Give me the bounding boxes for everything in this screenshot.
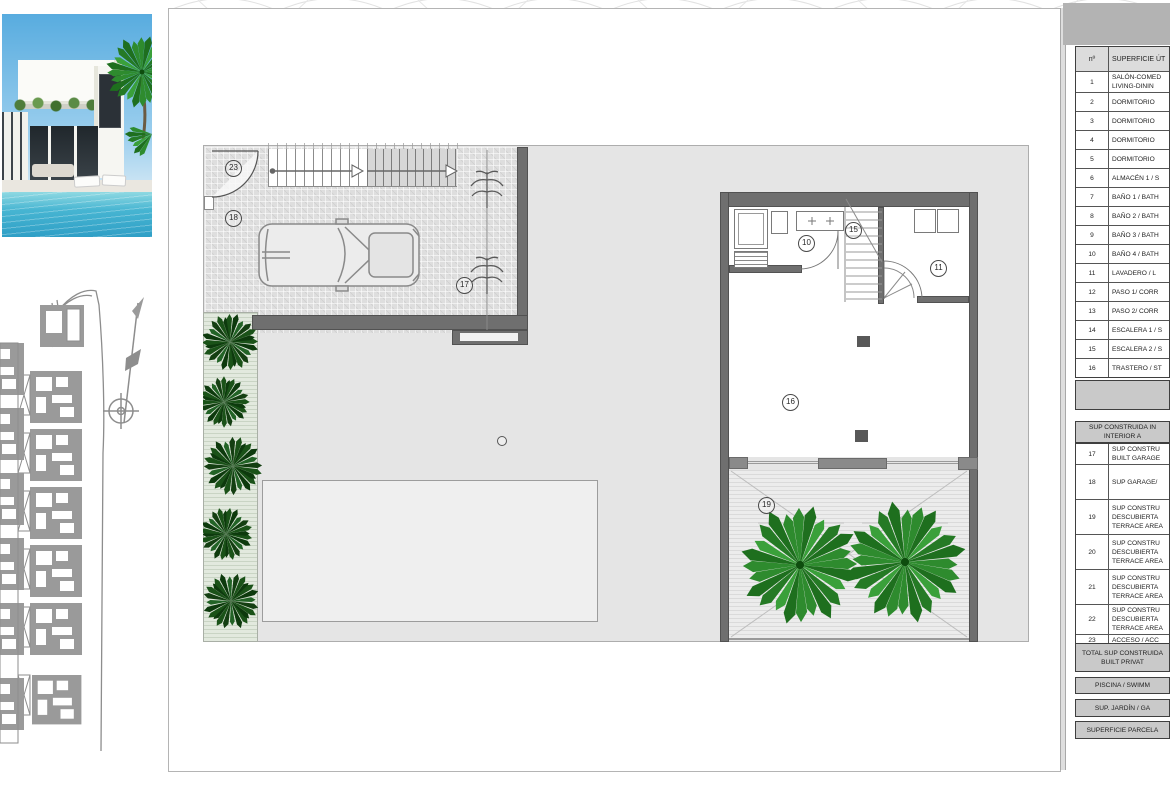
row-number: 10	[1076, 245, 1109, 263]
column	[857, 336, 870, 347]
row-number: 16	[1076, 359, 1109, 377]
table-row: 7 BAÑO 1 / BATH	[1076, 188, 1169, 207]
washer	[914, 209, 936, 233]
row-label: ESCALERA 1 / S	[1109, 325, 1169, 336]
row-label: SUP CONSTRUDESCUBIERTATERRACE AREA	[1109, 503, 1169, 532]
photo-tower-window	[99, 74, 121, 128]
row-label: ALMACÉN 1 / S	[1109, 173, 1169, 184]
table-row: 15 ESCALERA 2 / S	[1076, 340, 1169, 359]
room-marker: 10	[798, 235, 815, 252]
table-row: 8 BAÑO 2 / BATH	[1076, 207, 1169, 226]
table-row: 11 LAVADERO / L	[1076, 264, 1169, 283]
table-row: 14 ESCALERA 1 / S	[1076, 321, 1169, 340]
row-number: 5	[1076, 150, 1109, 168]
dryer	[937, 209, 959, 233]
shower	[734, 209, 768, 249]
terrace-edge	[729, 638, 969, 640]
garage-jamb	[204, 196, 214, 210]
laundry-wall	[917, 296, 969, 303]
photo-pool-ripples	[2, 192, 152, 237]
photo-column	[74, 126, 77, 180]
towel-radiator	[734, 251, 768, 268]
table-row: 6 ALMACÉN 1 / S	[1076, 169, 1169, 188]
pool-outline	[262, 480, 598, 622]
table-row: 2 DORMITORIO	[1076, 93, 1169, 112]
row-number: 8	[1076, 207, 1109, 225]
table-row: 5 DORMITORIO	[1076, 150, 1169, 169]
photo-left-wing	[2, 112, 28, 184]
house-wall-top	[720, 192, 978, 207]
stair-wall	[878, 207, 884, 304]
construida-total-band: TOTAL SUP CONSTRUIDA BUILT PRIVAT	[1075, 643, 1170, 672]
row-number: 4	[1076, 131, 1109, 149]
sheet: 23 18 17 10 15 11 16 19 nº SUPERFICIE ÚT…	[0, 0, 1170, 785]
row-number: 3	[1076, 112, 1109, 130]
photo-lounger	[74, 175, 101, 187]
table-row: 20 SUP CONSTRUDESCUBIERTATERRACE AREA	[1076, 535, 1169, 570]
table-row: 17 SUP CONSTRUBUILT GARAGE	[1076, 444, 1169, 465]
north-arrow	[103, 297, 144, 429]
row-label: SUP CONSTRUBUILT GARAGE	[1109, 444, 1169, 464]
room-marker: 16	[782, 394, 799, 411]
stair-step-numbers	[268, 143, 458, 149]
row-label: ESCALERA 2 / S	[1109, 344, 1169, 355]
row-label: DORMITORIO	[1109, 116, 1169, 127]
sliding-door-pier	[958, 457, 978, 470]
row-label: BAÑO 3 / BATH	[1109, 230, 1169, 241]
room-marker: 23	[225, 160, 242, 177]
row-number: 13	[1076, 302, 1109, 320]
table-row: 18 SUP GARAGE/	[1076, 465, 1169, 500]
row-number: 21	[1076, 570, 1109, 604]
row-label: DORMITORIO	[1109, 154, 1169, 165]
row-number: 1	[1076, 72, 1109, 92]
row-number: 6	[1076, 169, 1109, 187]
row-number: 20	[1076, 535, 1109, 569]
row-number: 19	[1076, 500, 1109, 534]
row-number: 11	[1076, 264, 1109, 282]
site-plan	[0, 283, 162, 753]
row-label: LAVADERO / L	[1109, 268, 1169, 279]
row-number: 18	[1076, 465, 1109, 499]
row-label: SALÓN-COMEDLIVING-DININ	[1109, 72, 1169, 92]
sliding-door-glass	[748, 461, 818, 464]
frame-right-divider	[1060, 8, 1066, 770]
utiles-total-band	[1075, 380, 1170, 410]
total-line: BUILT PRIVAT	[1101, 658, 1144, 667]
house-wall-left	[720, 192, 729, 642]
stairs-flight-1	[268, 149, 367, 187]
construida-header-line: INTERIOR A	[1104, 432, 1141, 441]
band-label: SUP. JARDÍN / GA	[1095, 704, 1150, 713]
table-row: 13 PASO 2/ CORR	[1076, 302, 1169, 321]
sink-counter	[796, 211, 844, 231]
titleblock-gray-band	[1063, 3, 1170, 45]
villa-photo	[2, 14, 152, 237]
cabinet	[771, 211, 788, 234]
room-marker: 19	[758, 497, 775, 514]
parcela-band: SUPERFICIE PARCELA	[1075, 721, 1170, 739]
table-header: nº SUPERFICIE ÚT	[1076, 47, 1169, 72]
sliding-door-pier	[818, 458, 887, 469]
garage-step	[452, 330, 528, 345]
band-label: SUPERFICIE PARCELA	[1087, 726, 1159, 735]
col-num: nº	[1076, 47, 1109, 71]
area-table-utiles: nº SUPERFICIE ÚT 1 SALÓN-COMEDLIVING-DIN…	[1075, 46, 1170, 378]
table-row: 22 SUP CONSTRUDESCUBIERTATERRACE AREA	[1076, 605, 1169, 635]
table-row: 21 SUP CONSTRUDESCUBIERTATERRACE AREA	[1076, 570, 1169, 605]
row-label: PASO 1/ CORR	[1109, 287, 1169, 298]
table-row: 1 SALÓN-COMEDLIVING-DININ	[1076, 72, 1169, 93]
room-marker: 18	[225, 210, 242, 227]
room-marker: 11	[930, 260, 947, 277]
band-label: PISCINA / SWIMM	[1095, 681, 1150, 690]
table-row: 12 PASO 1/ CORR	[1076, 283, 1169, 302]
row-number: 22	[1076, 605, 1109, 634]
row-label: TRASTERO / ST	[1109, 363, 1169, 374]
jardin-band: SUP. JARDÍN / GA	[1075, 699, 1170, 717]
row-label: BAÑO 1 / BATH	[1109, 192, 1169, 203]
sliding-door-pier	[729, 457, 748, 469]
row-number: 12	[1076, 283, 1109, 301]
row-label: DORMITORIO	[1109, 135, 1169, 146]
row-label: SUP CONSTRUDESCUBIERTATERRACE AREA	[1109, 538, 1169, 567]
garage-wall-bottom	[252, 315, 528, 330]
row-label: PASO 2/ CORR	[1109, 306, 1169, 317]
table-row: 10 BAÑO 4 / BATH	[1076, 245, 1169, 264]
construida-header-line: SUP CONSTRUIDA IN	[1089, 423, 1156, 432]
row-label: BAÑO 2 / BATH	[1109, 211, 1169, 222]
area-table-construida: 17 SUP CONSTRUBUILT GARAGE 18 SUP GARAGE…	[1075, 443, 1170, 647]
room-marker: 17	[456, 277, 473, 294]
terrace-19	[729, 470, 969, 639]
table-row: 19 SUP CONSTRUDESCUBIERTATERRACE AREA	[1076, 500, 1169, 535]
row-number: 2	[1076, 93, 1109, 111]
row-number: 14	[1076, 321, 1109, 339]
photo-lounger	[102, 174, 127, 186]
row-number: 7	[1076, 188, 1109, 206]
total-line: TOTAL SUP CONSTRUIDA	[1082, 649, 1163, 658]
construida-header: SUP CONSTRUIDA IN INTERIOR A	[1075, 421, 1170, 443]
room-marker: 15	[845, 222, 862, 239]
row-number: 15	[1076, 340, 1109, 358]
column	[855, 430, 868, 442]
table-row: 3 DORMITORIO	[1076, 112, 1169, 131]
photo-sofa	[32, 164, 74, 177]
table-row: 16 TRASTERO / ST	[1076, 359, 1169, 377]
stairs-flight-2	[367, 149, 457, 187]
row-label: SUP GARAGE/	[1109, 477, 1169, 488]
house-wall-right	[969, 192, 978, 642]
row-label: SUP CONSTRUDESCUBIERTATERRACE AREA	[1109, 605, 1169, 634]
piscina-band: PISCINA / SWIMM	[1075, 677, 1170, 694]
row-number: 17	[1076, 444, 1109, 464]
row-label: DORMITORIO	[1109, 97, 1169, 108]
col-label: SUPERFICIE ÚT	[1109, 54, 1169, 65]
hedge-strip	[203, 312, 258, 642]
table-row: 4 DORMITORIO	[1076, 131, 1169, 150]
table-row: 9 BAÑO 3 / BATH	[1076, 226, 1169, 245]
row-number: 9	[1076, 226, 1109, 244]
row-label: BAÑO 4 / BATH	[1109, 249, 1169, 260]
row-label: SUP CONSTRUDESCUBIERTATERRACE AREA	[1109, 573, 1169, 602]
sliding-door-glass	[887, 461, 958, 464]
